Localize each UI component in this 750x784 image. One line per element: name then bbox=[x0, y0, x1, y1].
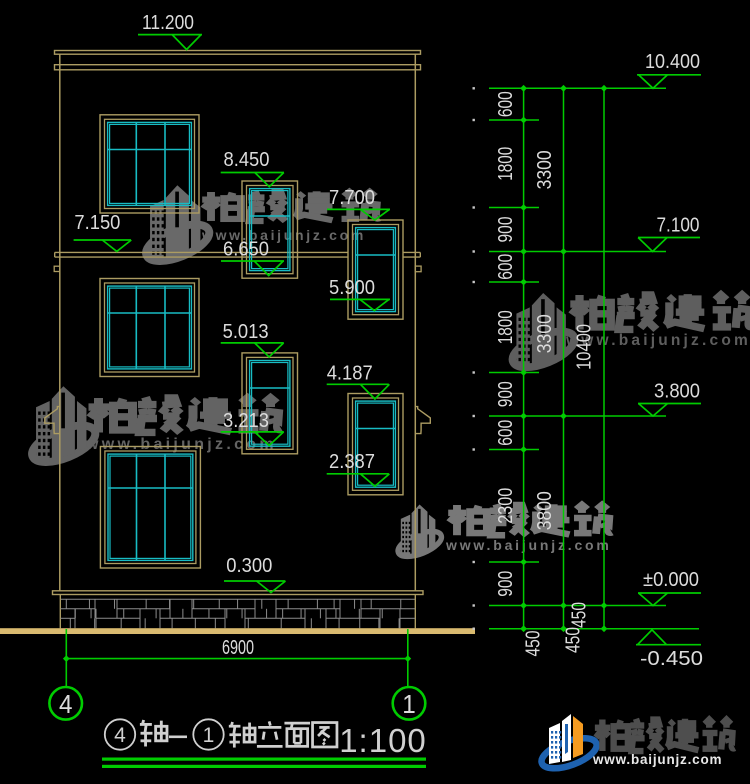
svg-text:2.387: 2.387 bbox=[329, 450, 375, 473]
svg-text:www.baijunjz.com: www.baijunjz.com bbox=[592, 752, 722, 767]
svg-text:3.213: 3.213 bbox=[223, 409, 269, 432]
svg-text:600: 600 bbox=[494, 254, 517, 280]
svg-text:11.200: 11.200 bbox=[142, 11, 194, 34]
svg-text:900: 900 bbox=[494, 381, 517, 407]
svg-text:3300: 3300 bbox=[533, 314, 556, 353]
svg-text:7.150: 7.150 bbox=[74, 211, 120, 234]
svg-text:2300: 2300 bbox=[494, 488, 517, 524]
svg-text:10.400: 10.400 bbox=[645, 50, 700, 73]
svg-text:600: 600 bbox=[494, 91, 517, 117]
svg-text:1:100: 1:100 bbox=[339, 722, 427, 759]
svg-text:4: 4 bbox=[59, 689, 73, 719]
svg-text:7.700: 7.700 bbox=[329, 186, 375, 209]
svg-text:4.187: 4.187 bbox=[327, 362, 373, 385]
svg-text:450: 450 bbox=[522, 631, 545, 657]
svg-text:5.900: 5.900 bbox=[329, 276, 375, 299]
svg-text:3800: 3800 bbox=[533, 491, 556, 530]
svg-text:1800: 1800 bbox=[494, 310, 517, 344]
svg-text:7.100: 7.100 bbox=[657, 214, 700, 237]
svg-text:900: 900 bbox=[494, 217, 517, 243]
svg-text:±0.000: ±0.000 bbox=[643, 568, 699, 591]
svg-text:8.450: 8.450 bbox=[224, 148, 270, 171]
svg-text:6900: 6900 bbox=[222, 636, 254, 659]
svg-text:450: 450 bbox=[568, 602, 591, 628]
svg-text:4: 4 bbox=[114, 724, 126, 747]
svg-text:450: 450 bbox=[562, 627, 585, 653]
svg-text:3300: 3300 bbox=[533, 150, 556, 189]
svg-text:900: 900 bbox=[494, 571, 517, 597]
svg-text:www.baijunjz.com: www.baijunjz.com bbox=[445, 537, 612, 553]
svg-text:1: 1 bbox=[203, 724, 215, 747]
svg-text:6.650: 6.650 bbox=[223, 238, 269, 261]
svg-text:5.013: 5.013 bbox=[223, 320, 269, 343]
svg-text:0.300: 0.300 bbox=[226, 554, 272, 577]
svg-text:10400: 10400 bbox=[573, 324, 596, 370]
svg-text:1: 1 bbox=[402, 689, 416, 719]
svg-text:600: 600 bbox=[494, 420, 517, 446]
svg-text:-0.450: -0.450 bbox=[640, 647, 703, 670]
svg-text:1800: 1800 bbox=[494, 147, 517, 181]
svg-text:3.800: 3.800 bbox=[654, 380, 700, 403]
